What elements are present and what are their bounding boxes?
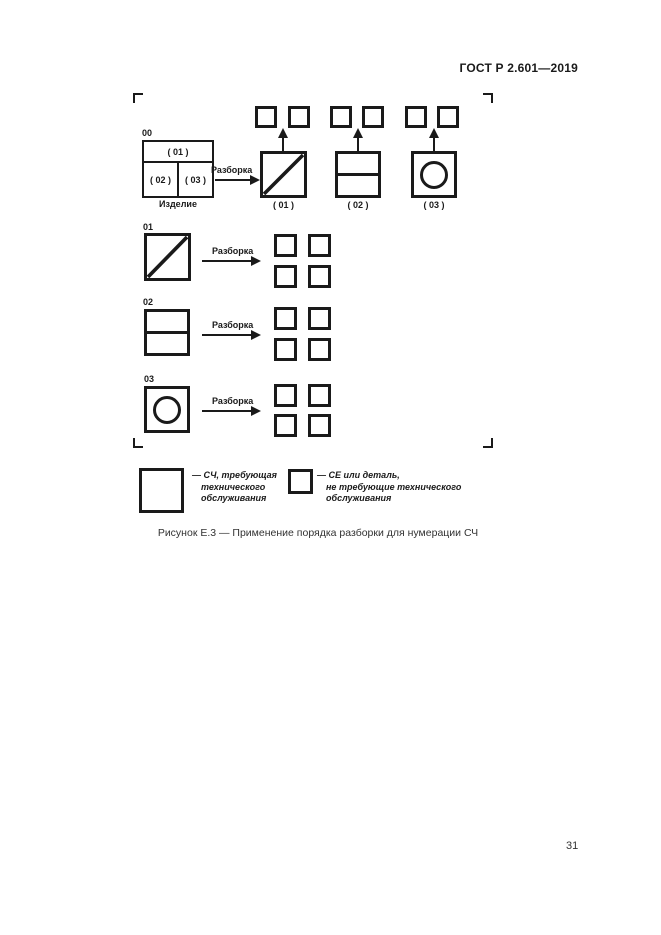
legend-2-line-2: не требующие технического — [326, 482, 461, 494]
disassembly-label-row-03: Разборка — [212, 396, 253, 406]
part-square — [437, 106, 459, 128]
unit-symbol-split — [144, 309, 190, 356]
part-square — [308, 234, 331, 257]
part-square — [255, 106, 277, 128]
product-bottom-row: ( 02 ) ( 03 ) — [144, 163, 212, 196]
level1-label-01: ( 01 ) — [260, 200, 307, 210]
arrow-right-icon — [215, 179, 251, 181]
unit-symbol-split — [335, 151, 381, 198]
part-square — [330, 106, 352, 128]
corner-mark-bottom-left — [133, 438, 143, 448]
part-square — [308, 265, 331, 288]
unit-symbol-circle — [411, 151, 457, 198]
row-03-id: 03 — [144, 374, 154, 384]
row-02-id: 02 — [143, 297, 153, 307]
disassembly-label-row-01: Разборка — [212, 246, 253, 256]
legend-square-large — [139, 468, 184, 513]
legend-1-line-3: обслуживания — [201, 493, 277, 505]
part-square — [274, 265, 297, 288]
arrow-up-icon — [357, 137, 359, 151]
legend-square-small — [288, 469, 313, 494]
corner-mark-top-right — [483, 93, 493, 103]
product-caption: Изделие — [142, 199, 214, 209]
corner-mark-top-left — [133, 93, 143, 103]
product-cell-01: ( 01 ) — [144, 142, 212, 163]
part-square — [274, 414, 297, 437]
product-cell-02: ( 02 ) — [144, 163, 179, 196]
part-square — [362, 106, 384, 128]
document-page: ГОСТ Р 2.601—2019 00 ( 01 ) ( 02 ) ( 03 … — [0, 0, 661, 935]
circle-icon — [153, 396, 181, 424]
legend-entry-2: — СЕ или деталь, не требующие техническо… — [317, 470, 461, 505]
part-square — [308, 384, 331, 407]
product-box: ( 01 ) ( 02 ) ( 03 ) — [142, 140, 214, 198]
arrow-up-icon — [282, 137, 284, 151]
unit-symbol-diagonal — [260, 151, 307, 198]
level1-label-02: ( 02 ) — [335, 200, 381, 210]
arrow-up-icon — [433, 137, 435, 151]
part-square — [405, 106, 427, 128]
split-line-icon — [337, 173, 379, 176]
legend-1-line-1: — СЧ, требующая — [192, 470, 277, 482]
diagonal-line-icon — [263, 154, 304, 195]
part-square — [308, 414, 331, 437]
product-cell-03: ( 03 ) — [179, 163, 212, 196]
part-square — [274, 384, 297, 407]
row-01-id: 01 — [143, 222, 153, 232]
disassembly-label-top: Разборка — [211, 165, 252, 175]
arrow-right-icon — [202, 410, 252, 412]
figure-caption: Рисунок Е.3 — Применение порядка разборк… — [133, 527, 503, 539]
product-id-label: 00 — [142, 128, 152, 138]
disassembly-label-row-02: Разборка — [212, 320, 253, 330]
document-header: ГОСТ Р 2.601—2019 — [460, 61, 578, 75]
part-square — [308, 338, 331, 361]
arrow-right-icon — [202, 334, 252, 336]
legend-2-line-1: — СЕ или деталь, — [317, 470, 461, 482]
part-square — [274, 307, 297, 330]
circle-icon — [420, 161, 448, 189]
unit-symbol-diagonal — [144, 233, 191, 281]
part-square — [274, 338, 297, 361]
level1-label-03: ( 03 ) — [411, 200, 457, 210]
diagonal-line-icon — [147, 236, 188, 278]
corner-mark-bottom-right — [483, 438, 493, 448]
arrow-right-icon — [202, 260, 252, 262]
unit-symbol-circle — [144, 386, 190, 433]
part-square — [288, 106, 310, 128]
part-square — [308, 307, 331, 330]
split-line-icon — [146, 331, 188, 334]
page-number: 31 — [566, 840, 578, 852]
legend-2-line-3: обслуживания — [326, 493, 461, 505]
legend-1-line-2: технического — [201, 482, 277, 494]
part-square — [274, 234, 297, 257]
legend-entry-1: — СЧ, требующая технического обслуживани… — [192, 470, 277, 505]
